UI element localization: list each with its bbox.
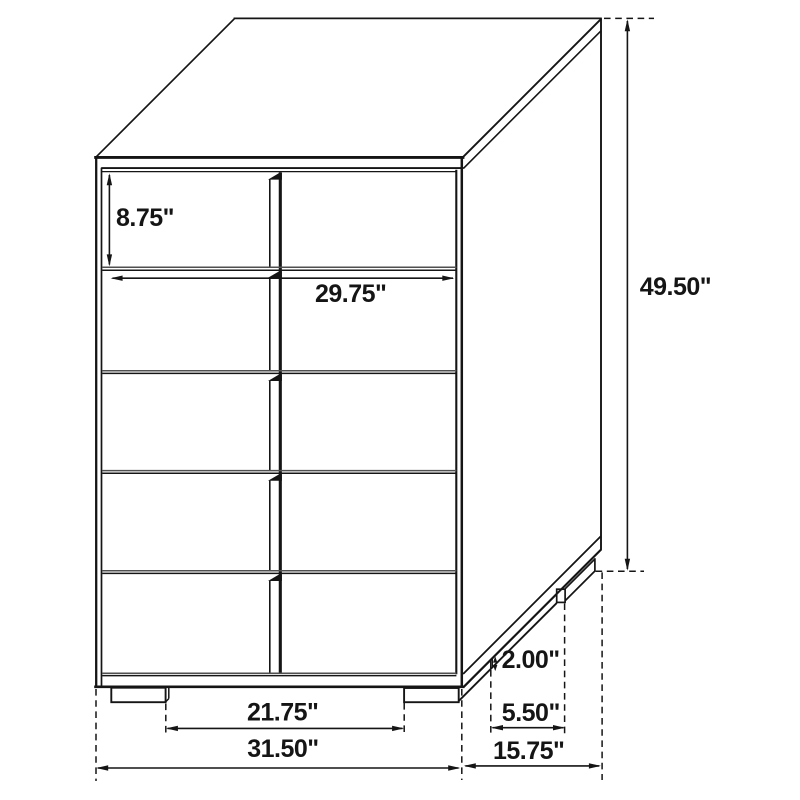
- svg-text:49.50": 49.50": [640, 273, 711, 301]
- svg-text:29.75": 29.75": [315, 280, 386, 308]
- svg-text:5.50": 5.50": [502, 699, 560, 727]
- svg-text:8.75": 8.75": [116, 204, 174, 232]
- svg-text:31.50": 31.50": [247, 735, 318, 763]
- svg-text:21.75": 21.75": [247, 699, 318, 727]
- svg-text:15.75": 15.75": [493, 737, 564, 765]
- svg-text:2.00": 2.00": [502, 646, 560, 674]
